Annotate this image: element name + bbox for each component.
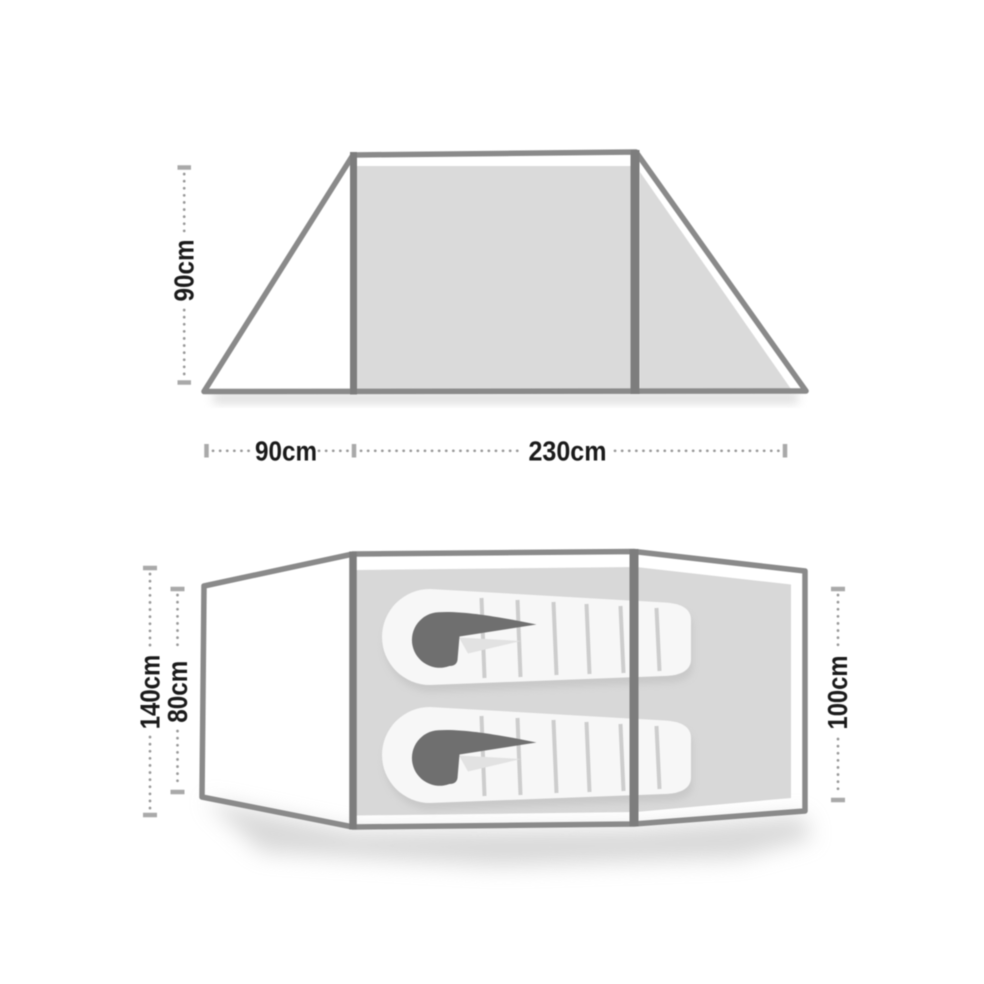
svg-text:140cm: 140cm: [135, 655, 166, 730]
svg-text:100cm: 100cm: [822, 656, 853, 730]
svg-text:230cm: 230cm: [529, 436, 607, 467]
svg-text:90cm: 90cm: [169, 240, 200, 302]
svg-text:90cm: 90cm: [255, 436, 317, 467]
svg-text:80cm: 80cm: [162, 661, 193, 723]
